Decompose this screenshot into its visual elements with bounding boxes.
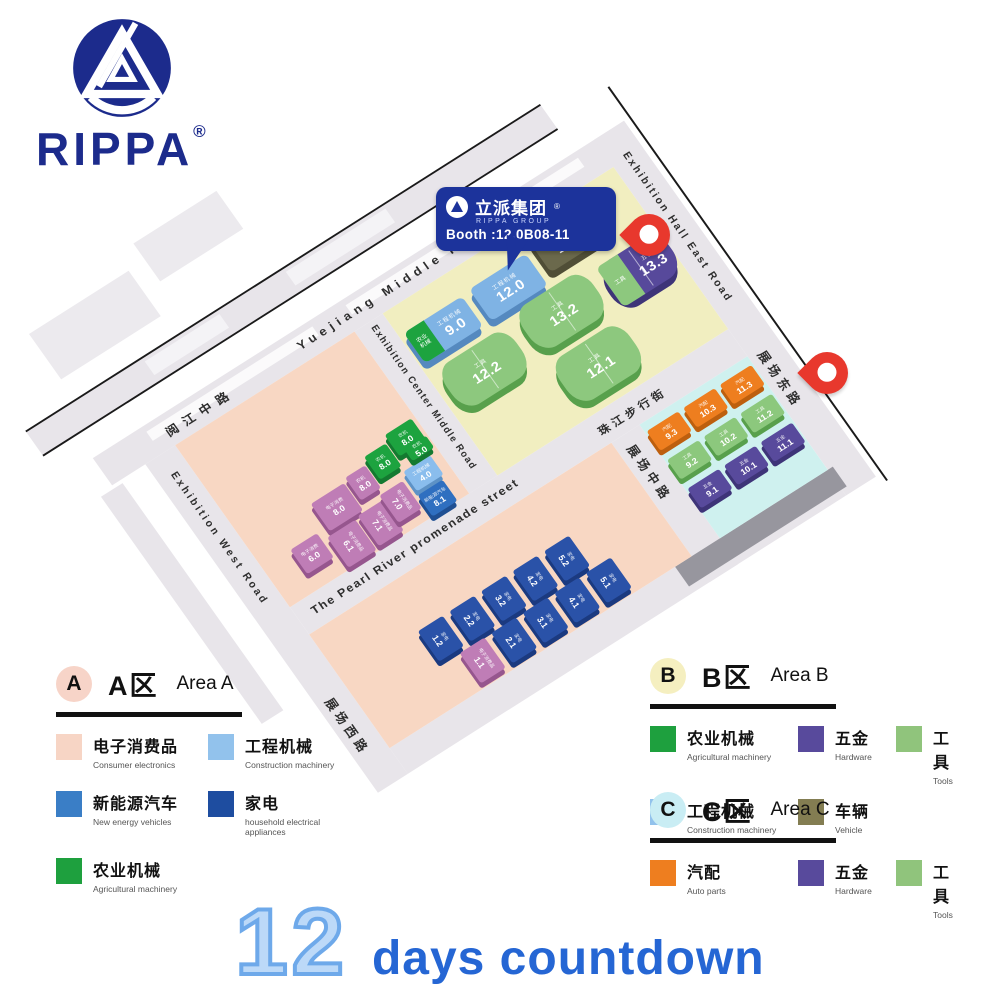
rippa-emblem-icon <box>70 16 174 120</box>
legend-circle: B <box>650 658 686 694</box>
legend-item-new-energy-vehicles: 新能源汽车New energy vehicles <box>56 790 208 837</box>
legend-swatch <box>798 726 824 752</box>
callout-company-cn: 立派集团 <box>475 194 547 219</box>
legend-swatch <box>208 734 234 760</box>
legend-underline <box>56 712 242 717</box>
legend-underline <box>650 704 836 709</box>
legend-swatch <box>896 726 922 752</box>
legend-swatch <box>56 858 82 884</box>
booth-10.3: 汽配10.3 <box>683 388 728 428</box>
legend-swatch <box>798 860 824 886</box>
rippa-mini-logo-icon <box>446 196 468 218</box>
countdown-text: days countdown <box>372 931 765 986</box>
legend-title-cn: C区 <box>702 790 753 829</box>
booth-10.2: 工具10.2 <box>703 417 748 457</box>
legend-item-consumer-electronics: 电子消费品Consumer electronics <box>56 733 208 770</box>
booth-10.1: 五金10.1 <box>724 446 769 486</box>
legend-title-cn: B区 <box>702 656 753 695</box>
legend-swatch <box>56 734 82 760</box>
curb-block <box>286 209 395 286</box>
legend-swatch <box>896 860 922 886</box>
legend-item-agricultural-machinery: 农业机械Agricultural machinery <box>650 725 798 786</box>
legend-title-en: Area A <box>177 673 234 695</box>
booth-11.1: 五金11.1 <box>760 422 805 462</box>
callout-company-en: RIPPA GROUP <box>476 218 606 225</box>
legend-title-en: Area C <box>771 799 830 821</box>
legend-title-cn: A区 <box>108 664 159 703</box>
legend-swatch <box>650 726 676 752</box>
legend-swatch <box>208 791 234 817</box>
legend-title-en: Area B <box>771 665 829 687</box>
callout-registered: ® <box>554 202 560 211</box>
booth-9.1: 五金9.1 <box>687 469 732 509</box>
brand-name: RIPPA® <box>36 122 266 176</box>
legend-item-tools: 工具Tools <box>896 725 966 786</box>
legend-area-a: AA区Area A 电子消费品Consumer electronics工程机械C… <box>56 664 348 894</box>
countdown-number: 12 <box>235 888 348 996</box>
legend-underline <box>650 838 836 843</box>
building-block <box>133 191 243 282</box>
booth-11.2: 工具11.2 <box>740 394 785 434</box>
booth-9.3: 汽配9.3 <box>647 411 692 451</box>
legend-item-hardware: 五金Hardware <box>798 725 896 786</box>
booth-9.2: 工具9.2 <box>667 440 712 480</box>
legend-item-construction-machinery: 工程机械Construction machinery <box>208 733 348 770</box>
legend-swatch <box>650 860 676 886</box>
legend-circle: A <box>56 666 92 702</box>
rippa-logo: RIPPA® <box>36 16 266 176</box>
legend-swatch <box>56 791 82 817</box>
legend-item-household-electrical-appliances: 家电household electrical appliances <box>208 790 348 837</box>
legend-circle: C <box>650 792 686 828</box>
countdown-banner: 12 days countdown <box>0 888 1000 996</box>
booth-11.3: 汽配11.3 <box>720 365 765 405</box>
booth-callout: 立派集团 ® RIPPA GROUP Booth :12.0B08-11 <box>436 187 616 251</box>
